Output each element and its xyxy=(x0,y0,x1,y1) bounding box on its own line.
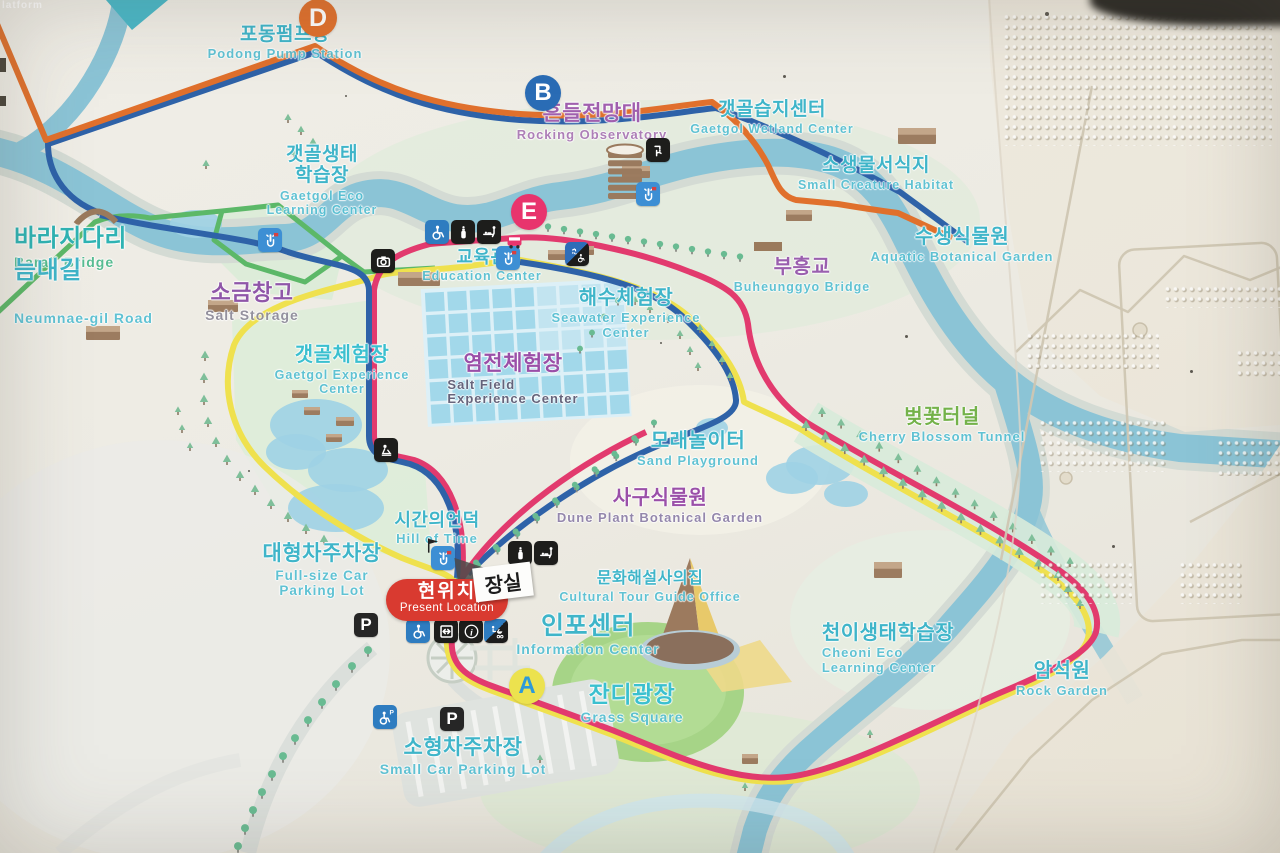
label-small-creature-habitat-ko: 소생물서식지 xyxy=(798,155,954,176)
edge-mark xyxy=(0,96,6,106)
label-gaetgol-experience-center-ko: 갯골체험장 xyxy=(275,344,410,366)
present-location-en: Present Location xyxy=(386,602,508,615)
label-small-car-parking-lot-ko: 소형차주차장 xyxy=(380,736,546,760)
diaper-change-icon xyxy=(534,541,558,565)
label-sand-playground: 모래놀이터Sand Playground xyxy=(637,430,759,469)
label-grass-square: 잔디광장Grass Square xyxy=(580,682,683,725)
label-education-center-en: Education Center xyxy=(422,269,542,283)
label-grass-square-ko: 잔디광장 xyxy=(580,682,683,708)
restroom-sticker: 장실 xyxy=(472,562,534,603)
dirt-speck xyxy=(1045,12,1049,16)
label-rock-garden-ko: 암석원 xyxy=(1016,660,1108,682)
label-neumnae-gil-road: 늠내길Neumnae-gil Road xyxy=(14,258,153,327)
label-podong-pump-station-ko: 포동펌프장 xyxy=(208,24,363,45)
flag-icon xyxy=(420,533,444,557)
course-marker-b: B xyxy=(525,75,561,111)
label-podong-pump-station-en: Podong Pump Station xyxy=(208,47,363,62)
park-map-photo: 포동펌프장Podong Pump Station흔들전망대Rocking Obs… xyxy=(0,0,1280,853)
restroom-sticker-text: 장실 xyxy=(483,565,523,598)
label-dune-plant-botanical-garden-ko: 사구식물원 xyxy=(557,487,763,509)
label-small-car-parking-lot-en: Small Car Parking Lot xyxy=(380,762,546,778)
dirt-speck xyxy=(1112,545,1115,548)
label-gaetgol-eco-learning-center-ko: 갯골생태 학습장 xyxy=(267,144,378,187)
label-seawater-experience-center: 해수체험장Seawater Experience Center xyxy=(551,287,700,340)
wheelchair-icon xyxy=(406,619,430,643)
touch-point-icon xyxy=(636,182,660,206)
label-small-car-parking-lot: 소형차주차장Small Car Parking Lot xyxy=(380,736,546,777)
label-small-creature-habitat-en: Small Creature Habitat xyxy=(798,178,954,192)
label-gaetgol-wetland-center-ko: 갯골습지센터 xyxy=(690,99,853,120)
camera-icon xyxy=(371,249,395,273)
label-baraji-bridge-ko: 바라지다리 xyxy=(14,226,127,253)
parking-icon: P xyxy=(354,613,378,637)
label-cherry-blossom-tunnel-ko: 벚꽃터널 xyxy=(859,406,1026,428)
label-buheunggyo-bridge-ko: 부흥교 xyxy=(734,256,870,278)
label-education-center: 교육관Education Center xyxy=(422,247,542,283)
label-rocking-observatory-en: Rocking Observatory xyxy=(517,128,668,143)
label-grass-square-en: Grass Square xyxy=(580,710,683,726)
cut-off-platform-label: latform xyxy=(2,0,43,11)
label-buheunggyo-bridge-en: Buheunggyo Bridge xyxy=(734,280,870,294)
svg-text:i: i xyxy=(470,628,473,638)
label-salt-field-experience-center: 염전체험장Salt Field Experience Center xyxy=(447,352,578,407)
label-aquatic-botanical-garden: 수생식물원Aquatic Botanical Garden xyxy=(871,226,1054,265)
label-salt-field-experience-center-ko: 염전체험장 xyxy=(447,352,578,376)
label-full-size-car-parking-lot: 대형차주차장Full-size Car Parking Lot xyxy=(263,542,382,598)
label-rock-garden: 암석원Rock Garden xyxy=(1016,660,1108,699)
info-icon: i xyxy=(459,619,483,643)
label-seawater-experience-center-en: Seawater Experience Center xyxy=(551,311,700,340)
label-information-center-en: Information Center xyxy=(516,642,659,658)
label-salt-storage-ko: 소금창고 xyxy=(205,281,299,306)
label-gaetgol-wetland-center: 갯골습지센터Gaetgol Wetland Center xyxy=(690,99,853,136)
nursing-room-icon xyxy=(451,220,475,244)
elevator-icon xyxy=(434,619,458,643)
label-salt-storage: 소금창고Salt Storage xyxy=(205,281,299,323)
label-gaetgol-wetland-center-en: Gaetgol Wetland Center xyxy=(690,122,853,136)
parking-icon: P xyxy=(440,707,464,731)
dirt-speck xyxy=(345,95,347,97)
course-marker-a: A xyxy=(509,668,545,704)
label-salt-storage-en: Salt Storage xyxy=(205,308,299,324)
course-marker-d: D xyxy=(299,0,337,37)
shuttle-bus-icon xyxy=(502,229,526,253)
dirt-speck xyxy=(783,75,786,78)
label-buheunggyo-bridge: 부흥교Buheunggyo Bridge xyxy=(734,256,870,294)
edge-mark xyxy=(0,58,6,72)
course-marker-e: E xyxy=(511,194,547,230)
dirt-speck xyxy=(905,335,908,338)
accessible-parking-icon: P xyxy=(373,705,397,729)
label-gaetgol-experience-center-en: Gaetgol Experience Center xyxy=(275,368,410,396)
shower-accessible-icon xyxy=(565,242,589,266)
label-dune-plant-botanical-garden-en: Dune Plant Botanical Garden xyxy=(557,511,763,526)
label-full-size-car-parking-lot-ko: 대형차주차장 xyxy=(263,542,382,566)
label-gaetgol-experience-center: 갯골체험장Gaetgol Experience Center xyxy=(275,344,410,396)
label-small-creature-habitat: 소생물서식지Small Creature Habitat xyxy=(798,155,954,192)
stroller-accessible-icon xyxy=(484,619,508,643)
label-aquatic-botanical-garden-en: Aquatic Botanical Garden xyxy=(871,250,1054,265)
label-cultural-tour-guide-office-ko: 문화해설사의집 xyxy=(559,570,740,588)
label-cheoni-eco-learning-center-ko: 천이생태학습장 xyxy=(822,622,954,644)
label-cultural-tour-guide-office-en: Cultural Tour Guide Office xyxy=(559,590,740,604)
label-rock-garden-en: Rock Garden xyxy=(1016,684,1108,699)
label-information-center-ko: 인포센터 xyxy=(516,612,659,640)
label-cherry-blossom-tunnel: 벚꽃터널Cherry Blossom Tunnel xyxy=(859,406,1026,445)
label-aquatic-botanical-garden-ko: 수생식물원 xyxy=(871,226,1054,248)
label-cheoni-eco-learning-center-en: Cheoni Eco Learning Center xyxy=(822,646,954,675)
wheelchair-icon xyxy=(425,220,449,244)
label-neumnae-gil-road-en: Neumnae-gil Road xyxy=(14,311,153,327)
label-cultural-tour-guide-office: 문화해설사의집Cultural Tour Guide Office xyxy=(559,570,740,604)
label-sand-playground-en: Sand Playground xyxy=(637,454,759,469)
svg-text:P: P xyxy=(389,709,394,716)
label-dune-plant-botanical-garden: 사구식물원Dune Plant Botanical Garden xyxy=(557,487,763,526)
dirt-speck xyxy=(248,470,250,472)
dirt-speck xyxy=(660,342,662,344)
label-cherry-blossom-tunnel-en: Cherry Blossom Tunnel xyxy=(859,430,1026,445)
label-hill-of-time-ko: 시간의언덕 xyxy=(394,510,479,530)
label-information-center: 인포센터Information Center xyxy=(516,612,659,658)
label-gaetgol-eco-learning-center-en: Gaetgol Eco Learning Center xyxy=(267,189,378,217)
drinking-fountain-icon xyxy=(646,138,670,162)
experience-spot-icon xyxy=(374,438,398,462)
diaper-change-icon xyxy=(477,220,501,244)
label-neumnae-gil-road-ko: 늠내길 xyxy=(14,258,153,285)
dirt-speck xyxy=(1190,370,1193,373)
label-full-size-car-parking-lot-en: Full-size Car Parking Lot xyxy=(263,568,382,598)
touch-point-icon xyxy=(258,228,282,252)
label-cheoni-eco-learning-center: 천이생태학습장Cheoni Eco Learning Center xyxy=(822,622,954,675)
label-gaetgol-eco-learning-center: 갯골생태 학습장Gaetgol Eco Learning Center xyxy=(267,144,378,217)
label-podong-pump-station: 포동펌프장Podong Pump Station xyxy=(208,24,363,62)
label-seawater-experience-center-ko: 해수체험장 xyxy=(551,287,700,309)
label-salt-field-experience-center-en: Salt Field Experience Center xyxy=(447,378,578,407)
label-sand-playground-ko: 모래놀이터 xyxy=(637,430,759,452)
